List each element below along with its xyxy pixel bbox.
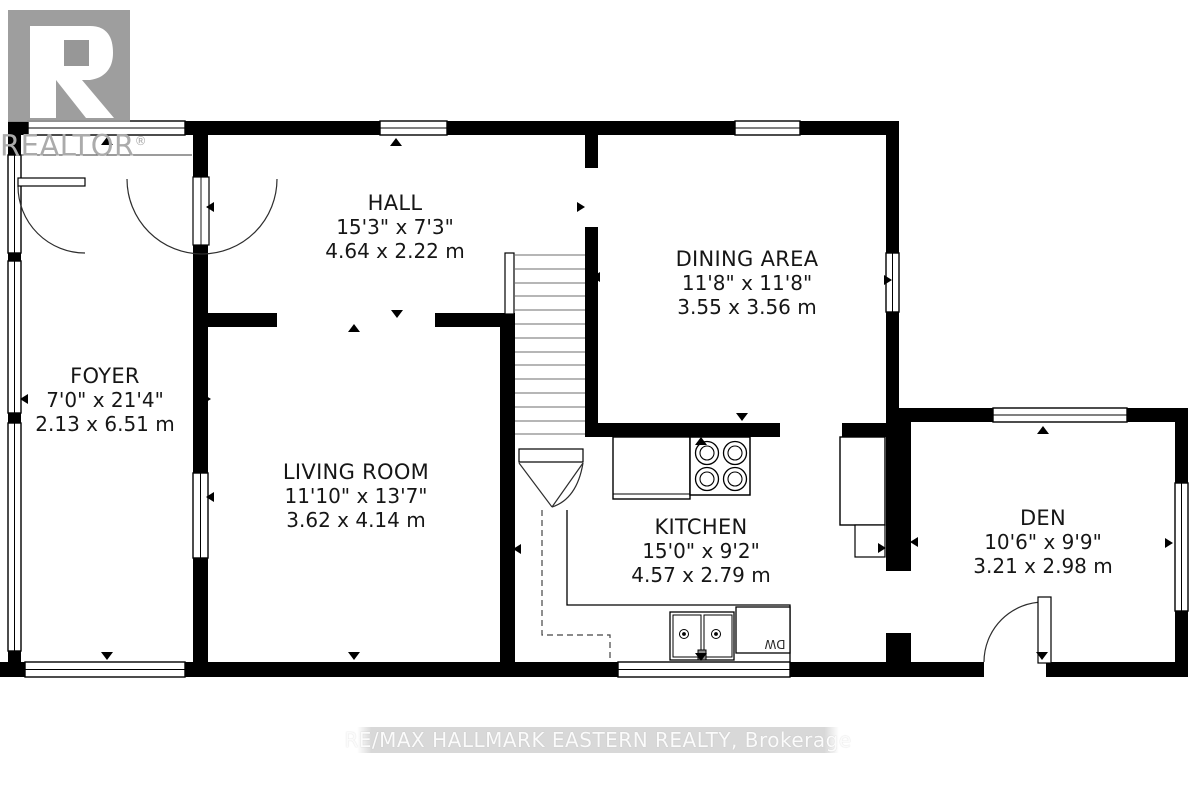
arrow-up-hall-opening [348, 324, 360, 332]
room-name: FOYER [35, 364, 174, 388]
room-label-living: LIVING ROOM 11'10" x 13'7" 3.62 x 4.14 m [283, 460, 429, 532]
floor-plan-drawing [0, 0, 1198, 798]
room-imperial: 7'0" x 21'4" [35, 388, 174, 412]
room-imperial: 11'10" x 13'7" [283, 484, 429, 508]
floor-plan: REALTOR® HALL 15'3" x 7'3" 4.64 x 2.22 m… [0, 0, 1198, 798]
room-name: DINING AREA [676, 247, 819, 271]
window-hall-top [380, 121, 447, 135]
room-imperial: 15'3" x 7'3" [325, 215, 464, 239]
wall-hall-dining-stub [585, 135, 598, 168]
room-name: KITCHEN [631, 515, 770, 539]
stair-landing [519, 449, 583, 462]
wall-foyer-divider-mid [193, 245, 208, 473]
room-imperial: 15'0" x 9'2" [631, 539, 770, 563]
upper-cabinets-dashed [542, 510, 610, 662]
sink [670, 612, 734, 660]
arrow-down-hall-opening [391, 310, 403, 318]
room-name: LIVING ROOM [283, 460, 429, 484]
room-imperial: 11'8" x 11'8" [676, 271, 819, 295]
arrow-down-dining [736, 413, 748, 421]
arrow-up-den-window [1037, 426, 1049, 434]
arrow-down-living-bottom [348, 652, 360, 660]
room-label-hall: HALL 15'3" x 7'3" 4.64 x 2.22 m [325, 191, 464, 263]
watermark-text: RE/MAX HALLMARK EASTERN REALTY, Brokerag… [344, 728, 851, 752]
window-foyer-living [193, 473, 208, 558]
foyer-entry-door [18, 178, 85, 253]
wall-den-left [886, 421, 911, 571]
window-foyer-left-c [8, 423, 21, 651]
room-metric: 4.57 x 2.79 m [631, 563, 770, 587]
wall-bottom-living [188, 662, 515, 677]
window-foyer-left-a [8, 155, 21, 253]
stair-steps [515, 255, 585, 434]
registered-mark: ® [135, 134, 148, 148]
brokerage-watermark: RE/MAX HALLMARK EASTERN REALTY, Brokerag… [357, 727, 839, 753]
room-metric: 3.55 x 3.56 m [676, 295, 819, 319]
wall-hall-stub-left [205, 313, 277, 327]
room-name: DEN [973, 506, 1112, 530]
room-metric: 4.64 x 2.22 m [325, 239, 464, 263]
wall-foyer-divider-low [193, 558, 208, 662]
window-den-top [993, 408, 1127, 422]
arrow-up-hall-window [390, 138, 402, 146]
wall-stair-left [500, 313, 515, 662]
arrow-down-foyer-bottom [101, 652, 113, 660]
dishwasher-label: DW [764, 637, 785, 651]
room-metric: 3.62 x 4.14 m [283, 508, 429, 532]
wall-stair-right [585, 227, 598, 425]
room-name: HALL [325, 191, 464, 215]
realtor-r-icon [8, 10, 130, 122]
arrow-left-den [910, 537, 918, 547]
arrow-right-den [1165, 538, 1173, 548]
wall-den-left-stub [886, 633, 911, 662]
walls [0, 121, 1188, 677]
wall-foyer-divider-top [193, 135, 208, 178]
room-metric: 3.21 x 2.98 m [973, 554, 1112, 578]
room-label-kitchen: KITCHEN 15'0" x 9'2" 4.57 x 2.79 m [631, 515, 770, 587]
wall-bottom-den-left [898, 662, 984, 677]
realtor-logo [8, 10, 130, 122]
realtor-wordmark: REALTOR® [0, 126, 147, 161]
room-label-foyer: FOYER 7'0" x 21'4" 2.13 x 6.51 m [35, 364, 174, 436]
stair-door [519, 463, 583, 507]
refrigerator [840, 437, 885, 557]
room-label-den: DEN 10'6" x 9'9" 3.21 x 2.98 m [973, 506, 1112, 578]
wall-kitchen-top-a [585, 423, 780, 437]
stair-railing [505, 253, 514, 314]
room-label-dining: DINING AREA 11'8" x 11'8" 3.55 x 3.56 m [676, 247, 819, 319]
wall-bottom-den-right [1046, 662, 1188, 677]
window-foyer-bottom [25, 662, 185, 677]
foyer-hall-door [127, 177, 277, 254]
room-metric: 2.13 x 6.51 m [35, 412, 174, 436]
window-kitchen-bottom [618, 662, 790, 677]
counter-top [613, 437, 690, 499]
staircase [505, 253, 585, 507]
window-dining-top [735, 121, 800, 135]
stove [690, 437, 750, 495]
window-foyer-left-b [8, 261, 21, 413]
window-den-right [1175, 483, 1188, 611]
arrow-right-hall-dining [577, 202, 585, 212]
room-imperial: 10'6" x 9'9" [973, 530, 1112, 554]
